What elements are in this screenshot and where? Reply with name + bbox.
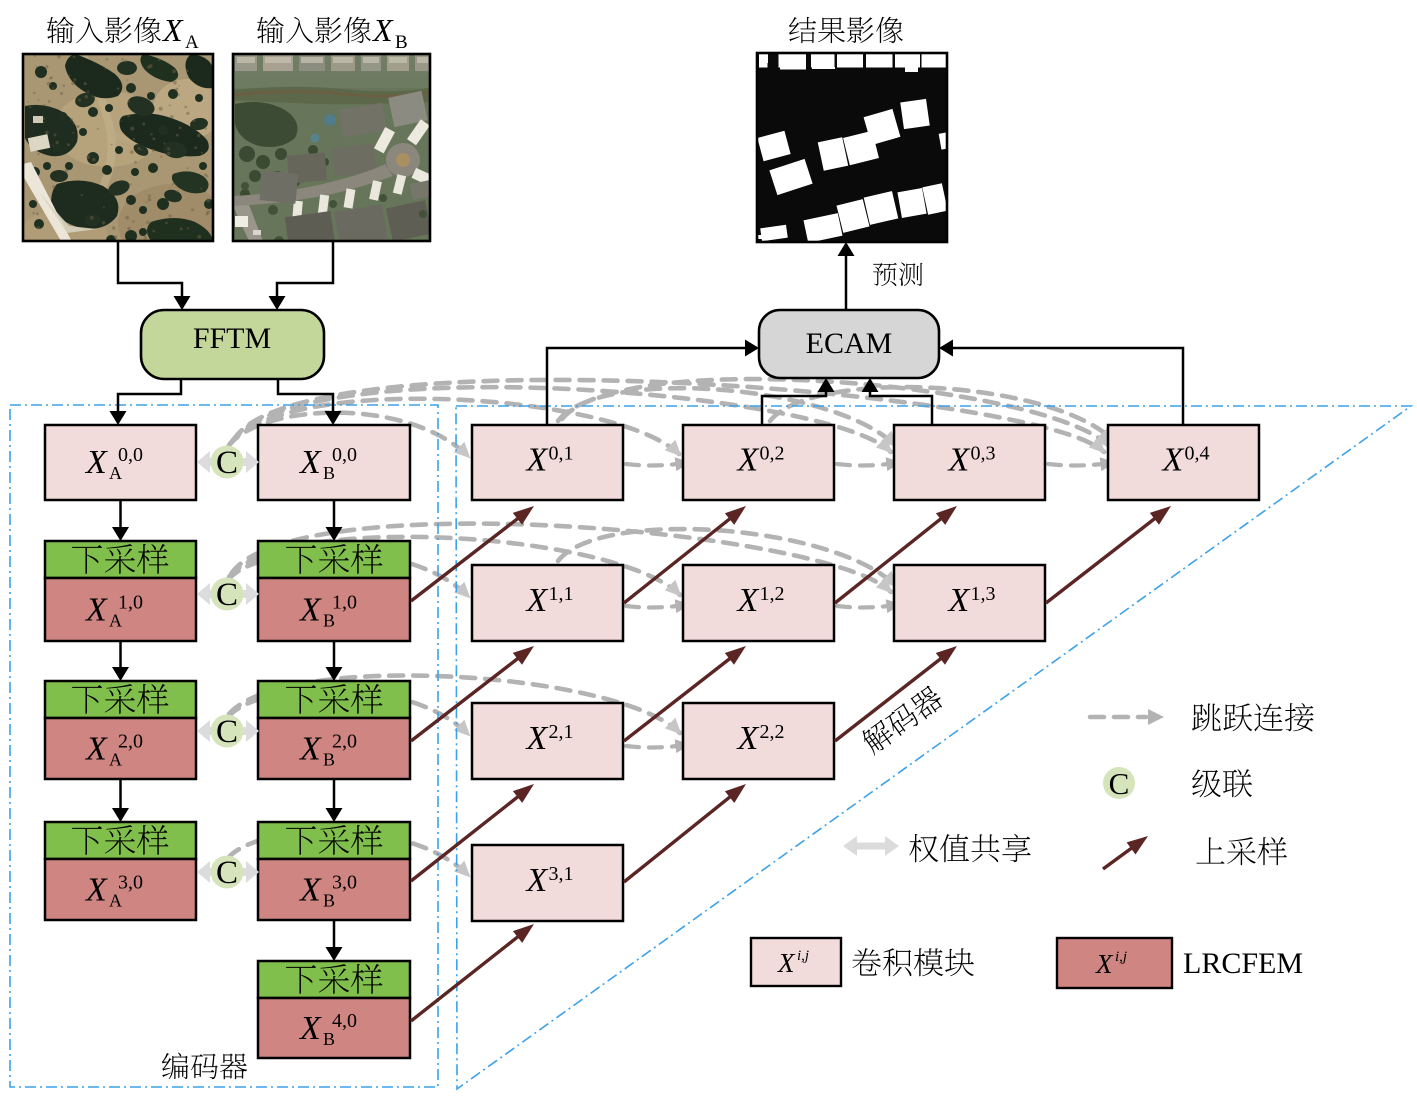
svg-text:C: C [216,714,238,750]
svg-text:0,1: 0,1 [549,443,574,465]
svg-text:0,4: 0,4 [1185,443,1210,465]
svg-text:A: A [109,611,122,631]
svg-text:X: X [84,731,108,768]
svg-text:4,0: 4,0 [332,1010,357,1032]
svg-text:X: X [777,948,796,978]
svg-text:C: C [216,445,238,481]
svg-text:X: X [161,12,184,48]
svg-text:3,0: 3,0 [118,872,143,894]
svg-text:X: X [736,442,760,479]
svg-text:i,j: i,j [1115,949,1127,965]
svg-text:B: B [323,750,335,770]
svg-text:X: X [947,582,971,619]
svg-text:0,3: 0,3 [971,443,996,465]
svg-text:X: X [298,872,322,909]
svg-text:X: X [1095,949,1114,979]
svg-text:C: C [1109,766,1130,801]
svg-text:A: A [109,891,122,911]
svg-text:1,1: 1,1 [549,583,574,605]
svg-text:1,0: 1,0 [332,592,357,614]
svg-text:3,1: 3,1 [549,863,574,885]
svg-text:C: C [216,855,238,891]
svg-text:B: B [395,32,408,53]
svg-text:X: X [371,12,394,48]
svg-text:C: C [216,577,238,613]
svg-text:B: B [323,1029,335,1049]
svg-text:X: X [947,442,971,479]
svg-text:0,0: 0,0 [332,444,357,466]
svg-text:i,j: i,j [797,948,809,964]
svg-text:1,3: 1,3 [971,583,996,605]
svg-text:X: X [736,720,760,757]
svg-text:X: X [298,1010,322,1047]
svg-text:B: B [323,611,335,631]
svg-text:2,0: 2,0 [118,731,143,753]
svg-text:B: B [323,463,335,483]
svg-text:X: X [525,720,549,757]
svg-text:A: A [109,463,122,483]
svg-text:B: B [323,891,335,911]
svg-text:0,0: 0,0 [118,444,143,466]
svg-text:2,0: 2,0 [332,731,357,753]
svg-text:X: X [298,592,322,629]
svg-text:2,2: 2,2 [760,721,785,743]
svg-text:X: X [525,862,549,899]
svg-text:X: X [736,582,760,619]
svg-text:X: X [298,731,322,768]
svg-text:X: X [298,444,322,481]
svg-text:LRCFEM: LRCFEM [1183,947,1303,980]
svg-text:X: X [84,444,108,481]
svg-text:X: X [84,872,108,909]
svg-text:0,2: 0,2 [760,443,785,465]
svg-text:X: X [1161,442,1185,479]
svg-text:FFTM: FFTM [193,322,271,355]
svg-text:A: A [185,32,199,53]
svg-text:1,0: 1,0 [118,592,143,614]
svg-text:A: A [109,750,122,770]
svg-text:X: X [525,442,549,479]
svg-text:1,2: 1,2 [760,583,785,605]
svg-text:2,1: 2,1 [549,721,574,743]
svg-text:ECAM: ECAM [806,327,893,360]
svg-text:3,0: 3,0 [332,872,357,894]
svg-text:X: X [84,592,108,629]
svg-text:X: X [525,582,549,619]
